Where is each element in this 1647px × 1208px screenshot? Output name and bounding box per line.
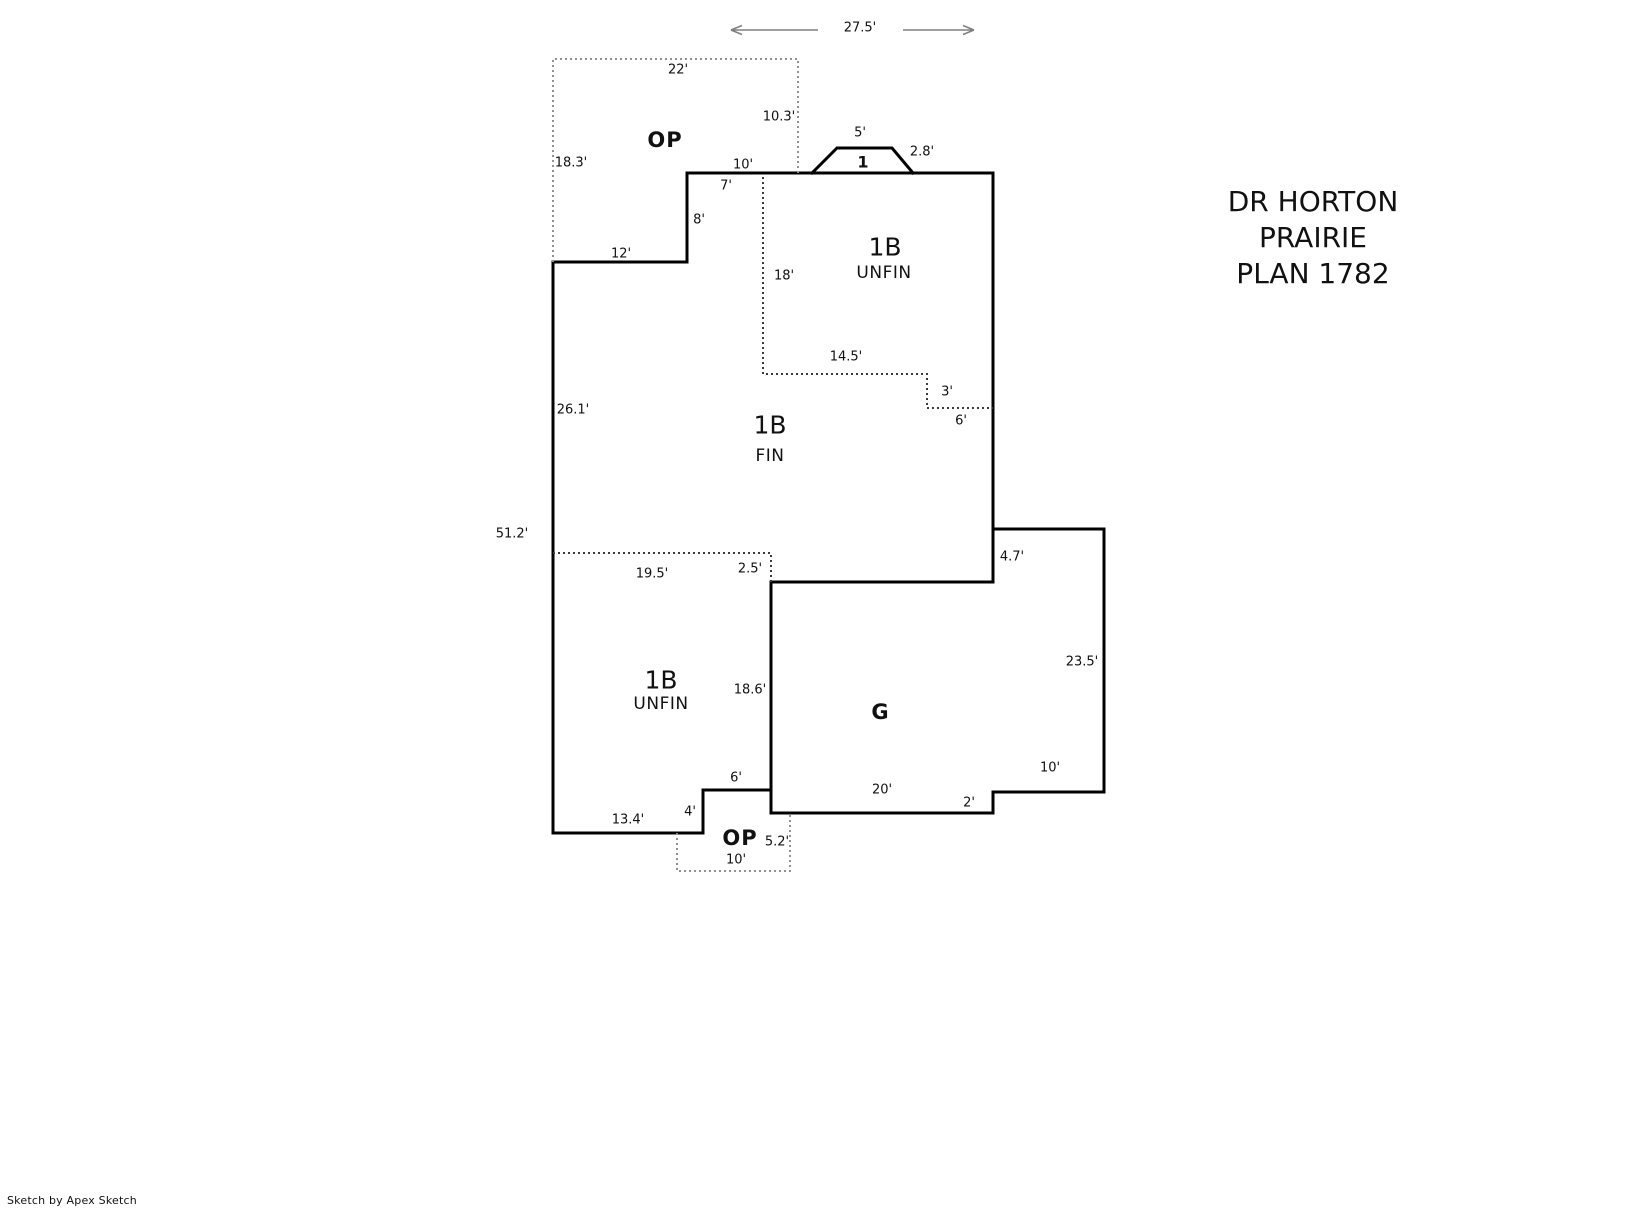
room-label-unfin-lower-status: UNFIN <box>633 694 688 714</box>
plan-title-line3: PLAN 1782 <box>1228 256 1399 292</box>
dim-ledge-bottom: 12' <box>611 247 631 262</box>
dim-porch-top-right: 10.3' <box>763 110 796 125</box>
dim-fin-bottom: 19.5' <box>636 567 669 582</box>
dim-entry-top: 10' <box>733 158 753 173</box>
dim-unfin-upper-left: 18' <box>774 269 794 284</box>
dim-stoop-top: 5' <box>854 126 866 141</box>
dim-step-left: 8' <box>693 213 705 228</box>
interior-partition-dotted <box>553 177 993 582</box>
dim-fin-left-wall: 26.1' <box>557 403 590 418</box>
dim-bay-side: 4' <box>684 805 696 820</box>
wall-outlines <box>553 148 1104 833</box>
room-label-porch-bottom: OP <box>722 826 757 850</box>
dim-garage-right-wall: 23.5' <box>1066 655 1099 670</box>
dim-garage-ext-bottom: 10' <box>1040 761 1060 776</box>
dim-porch-bottom-width: 10' <box>726 853 746 868</box>
dim-bay-top: 6' <box>730 771 742 786</box>
room-label-fin-code: 1B <box>753 411 786 440</box>
plan-title-line2: PRAIRIE <box>1228 220 1399 256</box>
dim-garage-step-side: 2' <box>963 796 975 811</box>
dim-garage-top-offset: 4.7' <box>1000 550 1024 565</box>
dim-fin-top-wall: 7' <box>720 179 732 194</box>
floorplan-sketch-page: 27.5' 22' 18.3' 10.3' 10' 5' 2.8' 7' 8' … <box>0 0 1647 1208</box>
partition-unfin-upper <box>763 177 993 408</box>
dim-porch-bottom-right: 5.2' <box>765 835 789 850</box>
room-label-porch-top: OP <box>647 128 682 152</box>
dim-porch-top-left: 18.3' <box>555 156 588 171</box>
wall-left-block <box>553 173 771 833</box>
dim-overall-left-wall: 51.2' <box>496 527 529 542</box>
dim-unfin-upper-jog-bottom: 6' <box>955 414 967 429</box>
room-label-unfin-lower-code: 1B <box>644 666 677 695</box>
dim-stoop-side: 2.8' <box>910 145 934 160</box>
watermark-text: Sketch by Apex Sketch <box>7 1194 137 1207</box>
dimension-arrow-left <box>731 26 818 35</box>
room-label-unfin-upper-code: 1B <box>868 233 901 262</box>
dim-unfin-upper-jog-side: 3' <box>941 385 953 400</box>
room-label-fin-status: FIN <box>755 446 784 466</box>
plan-title: DR HORTON PRAIRIE PLAN 1782 <box>1228 184 1399 292</box>
room-label-garage: G <box>871 700 888 724</box>
dimension-arrow-right <box>903 26 974 35</box>
dim-unfin-upper-bottom: 14.5' <box>830 350 863 365</box>
dim-unfin-lower-bottom: 13.4' <box>612 813 645 828</box>
dim-fin-bottom-jog: 2.5' <box>738 562 762 577</box>
dim-porch-top-width: 22' <box>668 63 688 78</box>
room-label-unfin-upper-status: UNFIN <box>856 263 911 283</box>
plan-title-line1: DR HORTON <box>1228 184 1399 220</box>
dim-garage-bottom: 20' <box>872 783 892 798</box>
porch-top-outline <box>553 59 798 262</box>
dim-overall-width: 27.5' <box>844 21 877 36</box>
floorplan-drawing <box>0 0 1647 1208</box>
dim-unfin-lower-right: 18.6' <box>734 683 767 698</box>
room-label-story-marker: 1 <box>857 153 868 172</box>
